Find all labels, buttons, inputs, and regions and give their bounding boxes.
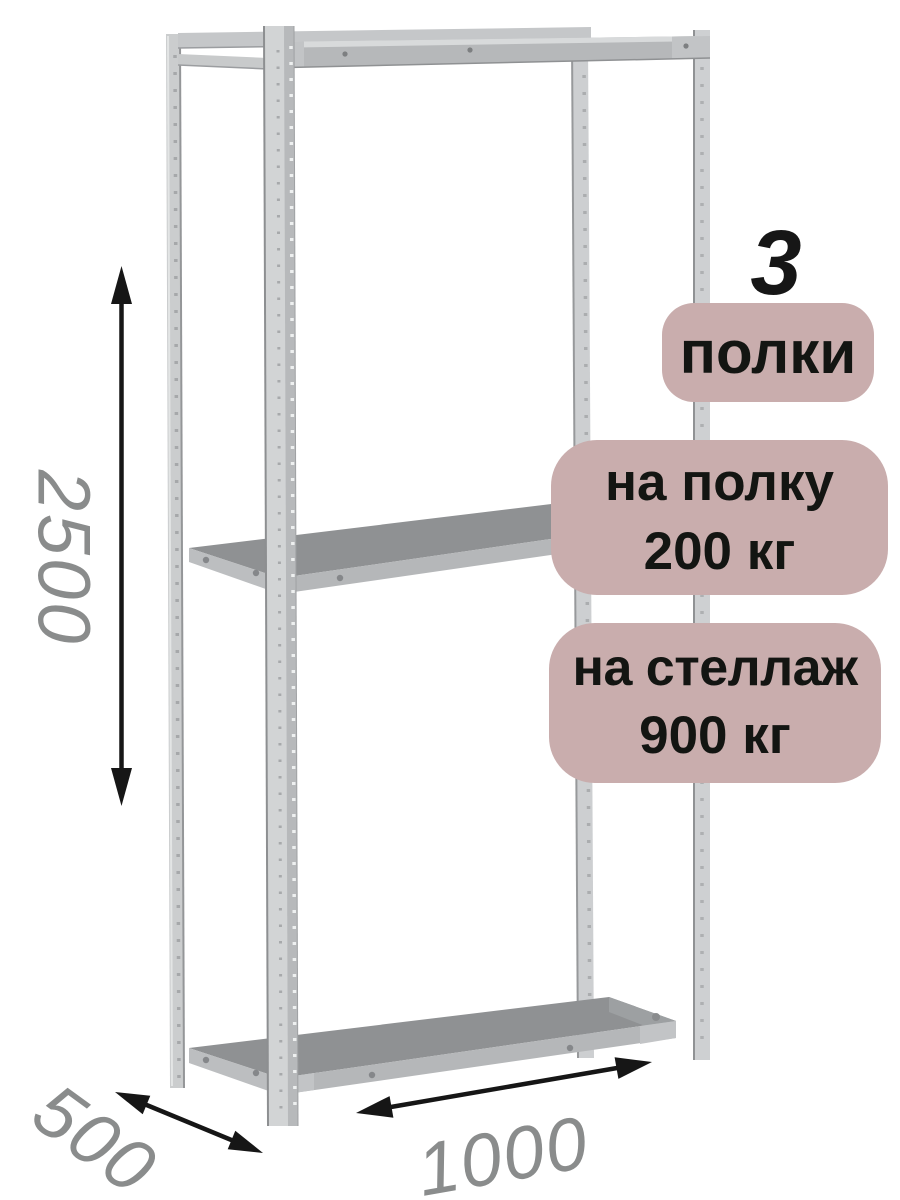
back-left-post (166, 34, 184, 1088)
per-rack-load-value: 900 кг (639, 702, 791, 771)
rack-illustration (0, 0, 900, 1200)
shelf-count: 3 (728, 214, 824, 312)
badge-shelves: полки (662, 303, 874, 402)
bottom-shelf (189, 997, 676, 1095)
per-rack-load-caption: на стеллаж (573, 635, 858, 703)
product-image: 3 полки на полку 200 кг на стеллаж 900 к… (0, 0, 900, 1200)
badge-per-rack-load: на стеллаж 900 кг (549, 623, 881, 783)
badge-per-shelf-load: на полку 200 кг (551, 440, 888, 595)
per-shelf-load-value: 200 кг (644, 518, 796, 587)
height-dimension-label: 2500 (22, 470, 107, 647)
per-shelf-load-caption: на полку (605, 449, 834, 518)
height-arrow (111, 266, 132, 806)
badge-shelves-label: полки (680, 314, 856, 392)
front-left-post (264, 26, 298, 1126)
